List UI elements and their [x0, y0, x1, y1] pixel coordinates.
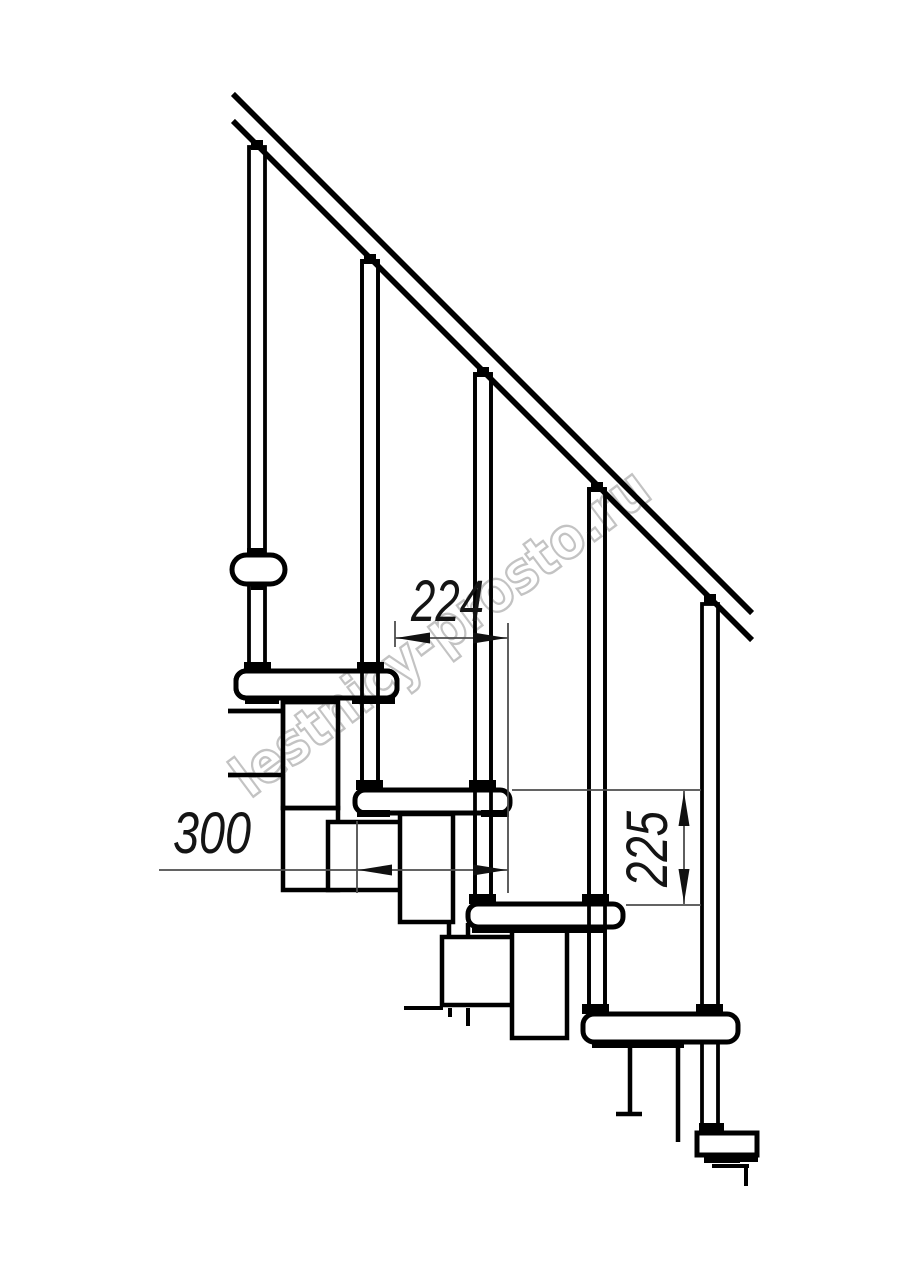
dim-value-300: 300	[173, 801, 251, 866]
tread-5	[583, 1014, 738, 1042]
tread-4	[468, 904, 623, 927]
cutaway-lines-under-module4	[404, 1008, 468, 1026]
tread-3	[355, 790, 510, 813]
baluster-1	[249, 147, 265, 672]
strip-t2-right-overlay	[352, 696, 395, 704]
module-under-tread4b	[512, 930, 567, 1038]
connector-b5-t5	[696, 1004, 723, 1014]
floor-step-lines	[712, 1159, 758, 1186]
module-under-tread4	[442, 937, 517, 1005]
strip-t4	[472, 925, 606, 933]
connector-b5-plate	[699, 1123, 724, 1133]
pill-bottom-clamp	[251, 582, 266, 590]
module-under-tread5-cutaway	[616, 1042, 678, 1142]
baluster-5	[702, 604, 718, 1129]
module-under-tread3	[400, 814, 453, 922]
arrow-up-icon	[679, 792, 690, 826]
module-mid-300	[328, 822, 403, 890]
arrow-down-icon	[679, 869, 690, 903]
base-plate	[697, 1133, 757, 1155]
dim-value-224: 224	[410, 569, 484, 634]
base-mounting	[697, 1133, 758, 1186]
tread-1-end-view	[232, 555, 285, 584]
baluster-4	[589, 489, 605, 1013]
strip-t3-left	[357, 810, 390, 817]
pill-top-clamp	[247, 548, 266, 557]
drawing-canvas: lestnicy-prosto.ru 224 300	[0, 0, 914, 1280]
dim-value-225: 225	[615, 810, 680, 887]
strip-t5	[592, 1040, 684, 1048]
strip-t3-right	[481, 810, 509, 817]
connector-b2-t2-overlay	[357, 662, 384, 672]
staircase-technical-drawing: lestnicy-prosto.ru 224 300	[0, 0, 914, 1280]
